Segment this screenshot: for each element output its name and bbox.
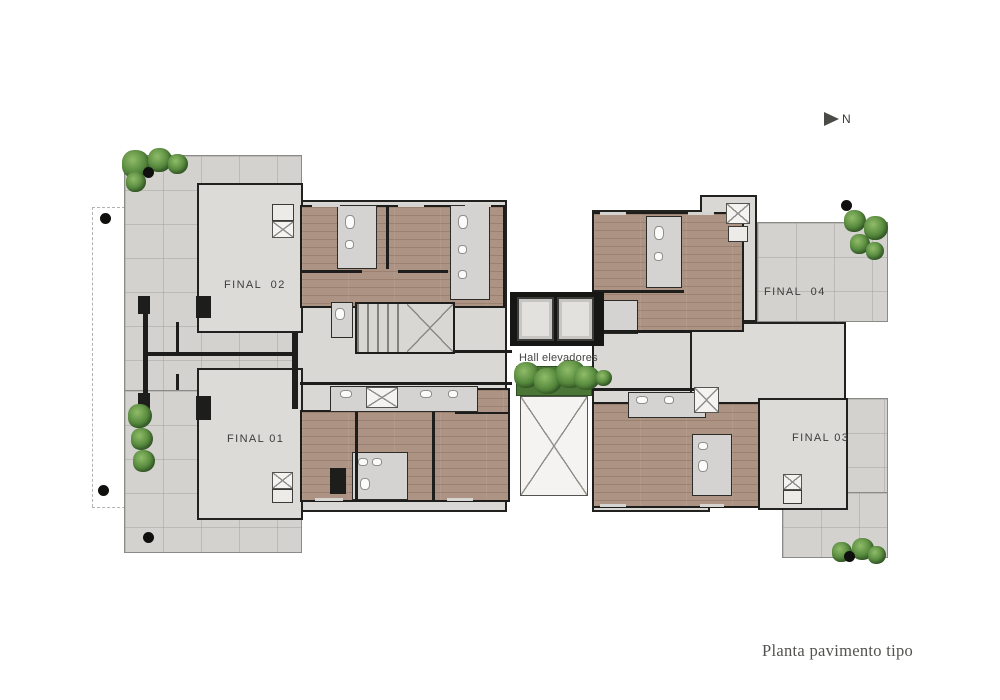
sink-icon bbox=[636, 396, 648, 404]
bathroom-block bbox=[337, 205, 377, 269]
north-label: N bbox=[842, 112, 851, 126]
toilet-icon bbox=[335, 308, 345, 320]
duct-shaft bbox=[694, 387, 719, 413]
column-pillar bbox=[330, 468, 346, 494]
staircase bbox=[355, 302, 455, 354]
unit-label-final-01: FINAL 01 bbox=[227, 433, 284, 445]
window-mark bbox=[688, 212, 714, 215]
sink-icon bbox=[345, 240, 354, 249]
toilet-icon bbox=[654, 226, 664, 240]
bathroom-block bbox=[450, 205, 490, 300]
toilet-icon bbox=[360, 478, 370, 490]
tree-icon bbox=[868, 546, 886, 564]
shrub-icon bbox=[596, 370, 612, 386]
tree-icon bbox=[866, 242, 884, 260]
duct-shaft bbox=[366, 387, 398, 408]
toilet-icon bbox=[698, 460, 708, 472]
column-marker bbox=[143, 167, 154, 178]
window-mark bbox=[465, 204, 491, 207]
wall-segment bbox=[592, 388, 710, 391]
wall-segment bbox=[292, 333, 298, 409]
tree-icon bbox=[133, 450, 155, 472]
duct-shaft bbox=[783, 490, 802, 504]
window-mark bbox=[700, 504, 724, 507]
column-marker bbox=[841, 200, 852, 211]
wall-segment bbox=[592, 290, 684, 293]
wall-segment bbox=[386, 207, 389, 269]
window-mark bbox=[312, 204, 340, 207]
sink-icon bbox=[458, 245, 467, 254]
living-final-03 bbox=[758, 398, 848, 510]
sink-icon bbox=[664, 396, 674, 404]
column-marker bbox=[844, 551, 855, 562]
window-mark bbox=[600, 212, 626, 215]
unit-label-final-04: FINAL 04 bbox=[764, 286, 826, 298]
bathroom-block bbox=[646, 216, 682, 288]
column-marker bbox=[100, 213, 111, 224]
column-pillar bbox=[138, 296, 150, 314]
sink-icon bbox=[458, 270, 467, 279]
tree-icon bbox=[128, 404, 152, 428]
wall-segment bbox=[143, 352, 295, 356]
sink-icon bbox=[340, 390, 352, 398]
duct-shaft bbox=[783, 474, 802, 490]
wall-segment bbox=[176, 322, 179, 352]
window-mark bbox=[600, 504, 626, 507]
window-mark bbox=[315, 498, 343, 501]
north-arrow: N bbox=[824, 112, 851, 126]
column-pillar bbox=[196, 396, 211, 420]
duct-shaft bbox=[272, 489, 293, 503]
property-line bbox=[92, 207, 93, 507]
wall-segment bbox=[300, 382, 512, 385]
north-arrow-icon bbox=[824, 112, 839, 126]
wall-segment bbox=[600, 330, 692, 333]
lightwell-shaft bbox=[520, 396, 588, 496]
wall-segment bbox=[302, 270, 362, 273]
elevator-shaft bbox=[557, 297, 594, 341]
column-marker bbox=[143, 532, 154, 543]
tree-icon bbox=[168, 154, 188, 174]
elevator-shaft bbox=[517, 297, 554, 341]
tree-icon bbox=[131, 428, 153, 450]
sink-icon bbox=[654, 252, 663, 261]
wall-segment bbox=[176, 374, 179, 390]
hall-elevators-label: Hall elevadores bbox=[519, 352, 598, 364]
window-mark bbox=[398, 204, 424, 207]
window-mark bbox=[447, 498, 473, 501]
duct-shaft bbox=[272, 221, 294, 238]
sink-icon bbox=[698, 442, 708, 450]
duct-shaft bbox=[728, 226, 748, 242]
floorplan-canvas: FINAL 02 FINAL 01 FINAL 04 FINAL 03 Hall… bbox=[0, 0, 1000, 700]
unit-label-final-03: FINAL 03 bbox=[792, 432, 849, 444]
column-marker bbox=[98, 485, 109, 496]
sink-icon bbox=[420, 390, 432, 398]
column-pillar bbox=[196, 296, 211, 318]
unit-label-final-02: FINAL 02 bbox=[224, 279, 286, 291]
sink-icon bbox=[372, 458, 382, 466]
toilet-icon bbox=[345, 215, 355, 229]
duct-shaft bbox=[272, 472, 293, 489]
wall-segment bbox=[432, 412, 435, 500]
duct-shaft bbox=[272, 204, 294, 221]
toilet-icon bbox=[458, 215, 468, 229]
tree-icon bbox=[844, 210, 866, 232]
sink-icon bbox=[448, 390, 458, 398]
plan-caption: Planta pavimento tipo bbox=[762, 641, 913, 661]
sink-icon bbox=[358, 458, 368, 466]
wall-segment bbox=[455, 350, 512, 353]
wall-segment bbox=[355, 412, 358, 500]
duct-shaft bbox=[726, 203, 750, 224]
wall-segment bbox=[398, 270, 448, 273]
